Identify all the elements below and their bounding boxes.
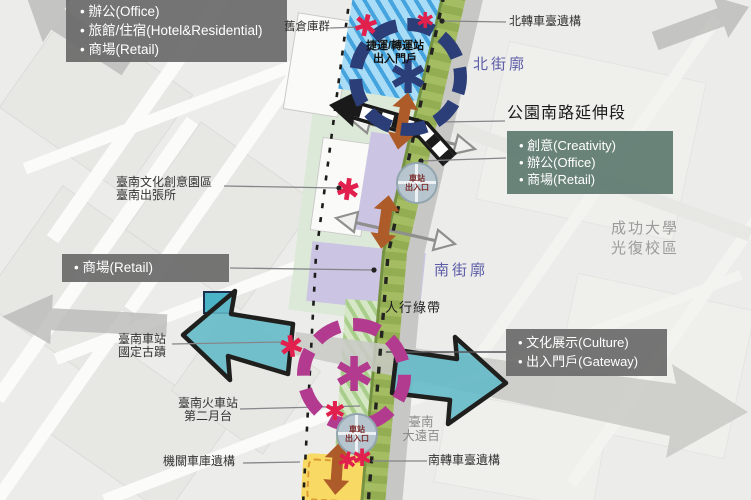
label-pedestrian-green-belt: 人行綠帶 bbox=[385, 301, 441, 314]
label-ncku-line1: 成功大學 bbox=[611, 219, 679, 239]
heritage-marker-icon: ✱ bbox=[352, 447, 372, 471]
heritage-marker-icon: ✱ bbox=[277, 331, 306, 364]
station-exit-label-line1: 車站 bbox=[409, 174, 425, 183]
label-old-warehouses: 舊倉庫群 bbox=[284, 21, 330, 34]
label-station-heritage: 臺南車站 國定古蹟 bbox=[118, 333, 166, 359]
legend-item: 旅館/住宿(Hotel&Residential) bbox=[80, 21, 277, 40]
legend-item: 商場(Retail) bbox=[519, 171, 665, 188]
legend-item: 出入門戶(Gateway) bbox=[518, 353, 659, 372]
heritage-marker-icon: ✱ bbox=[416, 10, 434, 32]
legend-item: 商場(Retail) bbox=[80, 40, 277, 59]
label-north-turntable: 北轉車臺遺構 bbox=[509, 15, 581, 28]
station-exit-label-line2: 出入口 bbox=[405, 183, 429, 192]
label-mrt-gateway-line2: 出入門戶 bbox=[352, 53, 438, 66]
label-south-turntable: 南轉車臺遺構 bbox=[428, 454, 500, 467]
label-mrt-gateway: 捷運/轉運站 出入門戶 bbox=[352, 40, 438, 66]
legend-item: 辦公(Office) bbox=[80, 2, 277, 21]
label-south-block: 南街廓 bbox=[434, 264, 488, 277]
culture-hub-asterisk-icon: ✱ bbox=[334, 347, 374, 403]
legend-box-park-road: 創意(Creativity) 辦公(Office) 商場(Retail) bbox=[507, 131, 673, 194]
legend-box-culture: 文化展示(Culture) 出入門戶(Gateway) bbox=[506, 329, 667, 376]
legend-item: 文化展示(Culture) bbox=[518, 334, 659, 353]
label-mrt-gateway-line1: 捷運/轉運站 bbox=[352, 40, 438, 53]
heritage-marker-icon: ✱ bbox=[324, 398, 346, 424]
legend-box-northwest: 辦公(Office) 旅館/住宿(Hotel&Residential) 商場(R… bbox=[66, 0, 287, 62]
label-north-block: 北街廓 bbox=[473, 58, 527, 71]
legend-item: 創意(Creativity) bbox=[519, 137, 665, 154]
park-road-extension-title: 公園南路延伸段 bbox=[507, 107, 626, 120]
tainan-station-area-plan-map: ✱ ✱ 車站 出入口 車站 出入口 ✱ ✱ ✱ ✱ ✱ ✱ ✱ 辦公(Offic… bbox=[0, 0, 751, 500]
station-exit-label-line2: 出入口 bbox=[345, 434, 369, 443]
label-fe21-line1: 臺南 bbox=[398, 415, 444, 429]
label-ncku-line2: 光復校區 bbox=[611, 239, 679, 259]
label-station-heritage-line2: 國定古蹟 bbox=[118, 346, 166, 359]
label-fe21-line2: 大遠百 bbox=[398, 429, 444, 443]
label-tccp-line2: 臺南出張所 bbox=[116, 189, 212, 202]
label-second-platform: 臺南火車站 第二月台 bbox=[176, 397, 240, 423]
heritage-marker-icon: ✱ bbox=[333, 174, 362, 207]
label-depot: 機關車庫遺構 bbox=[163, 455, 235, 468]
label-fe21-department-store: 臺南 大遠百 bbox=[398, 415, 444, 443]
cross-link-arrowhead bbox=[433, 230, 455, 250]
legend-box-retail: 商場(Retail) bbox=[62, 254, 229, 282]
station-exit-label-line1: 車站 bbox=[349, 425, 365, 434]
label-second-platform-line2: 第二月台 bbox=[176, 410, 240, 423]
legend-item: 商場(Retail) bbox=[74, 258, 229, 277]
label-ncku-campus: 成功大學 光復校區 bbox=[611, 219, 679, 258]
legend-item: 辦公(Office) bbox=[519, 154, 665, 171]
station-exit-symbol-north: 車站 出入口 bbox=[396, 162, 438, 204]
label-tccp: 臺南文化創意園區 臺南出張所 bbox=[116, 176, 212, 202]
pond bbox=[203, 291, 233, 314]
